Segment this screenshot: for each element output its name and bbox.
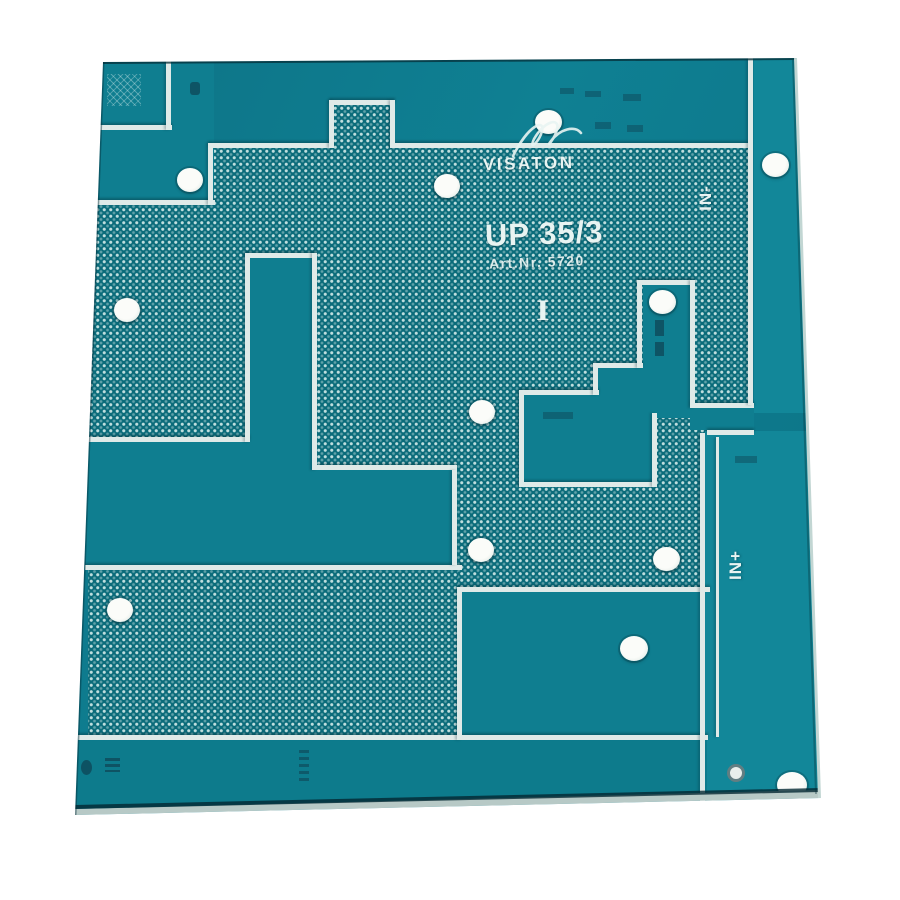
brand-label: VISATON <box>483 153 575 175</box>
marker-label: I <box>536 294 549 328</box>
clearance-line <box>690 280 695 408</box>
clearance-line <box>78 735 708 740</box>
faint-mark <box>543 412 573 419</box>
ring-pad-hole <box>727 764 745 782</box>
faint-mark <box>560 88 574 94</box>
input-positive-label: IN+ <box>726 533 748 597</box>
drill-hole <box>620 636 648 661</box>
clearance-line <box>208 143 213 205</box>
clearance-line <box>312 253 317 470</box>
clearance-line <box>452 470 457 565</box>
faint-mark <box>655 342 664 356</box>
trace-right-strip-lower <box>705 431 821 815</box>
clearance-line <box>245 253 250 442</box>
article-number-label: Art.Nr. 5720 <box>489 252 585 271</box>
clearance-line <box>519 390 524 487</box>
drill-hole <box>434 174 460 198</box>
trace-jog <box>690 408 754 430</box>
drill-hole <box>469 400 495 424</box>
clearance-line <box>329 100 334 148</box>
clearance-line <box>245 253 317 258</box>
clearance-line <box>317 465 457 470</box>
trace-horizontal-band <box>250 470 457 565</box>
clearance-line <box>75 125 172 130</box>
faint-mark <box>655 320 664 336</box>
trace-right-strip-upper <box>754 28 821 413</box>
clearance-line <box>166 60 171 130</box>
drill-hole <box>468 538 494 562</box>
clearance-line <box>85 565 462 570</box>
faint-mark <box>627 125 643 132</box>
faint-mark <box>299 750 309 784</box>
clearance-line <box>519 482 657 487</box>
clearance-line <box>652 413 657 487</box>
drill-hole <box>653 547 680 571</box>
copper-pour-top-tab <box>332 105 392 150</box>
trace-left-band <box>85 442 250 565</box>
drill-hole <box>777 772 807 798</box>
clearance-line <box>208 143 334 148</box>
model-label: UP 35/3 <box>484 214 604 254</box>
clearance-line <box>457 587 462 740</box>
faint-mark <box>623 94 641 101</box>
clearance-line <box>390 100 395 148</box>
clearance-line <box>593 363 598 395</box>
clearance-line <box>637 280 642 368</box>
trace-vertical-channel <box>250 258 312 472</box>
drill-hole <box>762 153 789 177</box>
clearance-line <box>707 430 754 435</box>
clearance-line <box>593 363 643 368</box>
faint-mark <box>81 760 92 775</box>
clearance-line <box>637 280 695 285</box>
faint-mark <box>190 82 200 95</box>
faint-mark <box>105 758 120 772</box>
faint-mark <box>585 91 601 97</box>
clearance-line <box>700 433 705 803</box>
drill-hole <box>649 290 676 314</box>
clearance-line <box>329 100 395 105</box>
input-negative-label: IN- <box>696 166 718 230</box>
circuit-board: VISATON UP 35/3 Art.Nr. 5720 I IN- IN+ <box>75 28 821 818</box>
hatch-texture-patch <box>107 74 141 106</box>
drill-hole <box>114 298 140 322</box>
copper-pour-bottom-left <box>88 565 458 737</box>
clearance-line <box>748 56 753 405</box>
clearance-line <box>75 200 215 205</box>
drill-hole <box>107 598 133 622</box>
drill-hole <box>177 168 203 192</box>
trace-bottom-right-block <box>457 590 705 737</box>
clearance-line <box>457 587 710 592</box>
faint-mark <box>595 122 611 129</box>
trace-center-block <box>524 395 652 482</box>
clearance-line <box>716 437 719 737</box>
clearance-line <box>85 437 250 442</box>
faint-mark <box>735 456 757 463</box>
clearance-line <box>690 403 754 408</box>
trace-bottom-strip <box>75 739 707 815</box>
clearance-line <box>519 390 599 395</box>
